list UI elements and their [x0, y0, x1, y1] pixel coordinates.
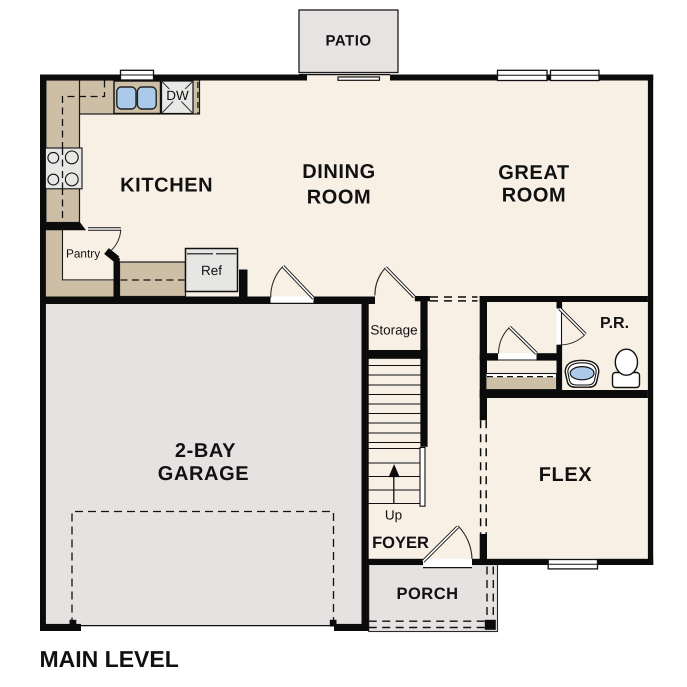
- svg-text:Ref: Ref: [201, 263, 222, 278]
- svg-text:FLEX: FLEX: [539, 464, 593, 486]
- svg-text:FOYER: FOYER: [372, 534, 429, 552]
- svg-text:MAIN LEVEL: MAIN LEVEL: [40, 646, 179, 672]
- svg-text:DW: DW: [166, 88, 189, 103]
- svg-text:PORCH: PORCH: [396, 585, 458, 603]
- svg-text:Up: Up: [385, 508, 402, 523]
- svg-text:2-BAY: 2-BAY: [175, 440, 236, 462]
- svg-text:ROOM: ROOM: [307, 186, 372, 208]
- svg-text:GREAT: GREAT: [498, 162, 570, 184]
- svg-text:Storage: Storage: [370, 323, 417, 338]
- svg-text:GARAGE: GARAGE: [158, 463, 249, 485]
- svg-text:Pantry: Pantry: [66, 247, 100, 261]
- svg-text:P.R.: P.R.: [600, 315, 629, 332]
- svg-text:DINING: DINING: [302, 161, 376, 183]
- svg-text:ROOM: ROOM: [502, 185, 567, 207]
- svg-text:PATIO: PATIO: [325, 33, 371, 50]
- svg-text:KITCHEN: KITCHEN: [120, 175, 213, 197]
